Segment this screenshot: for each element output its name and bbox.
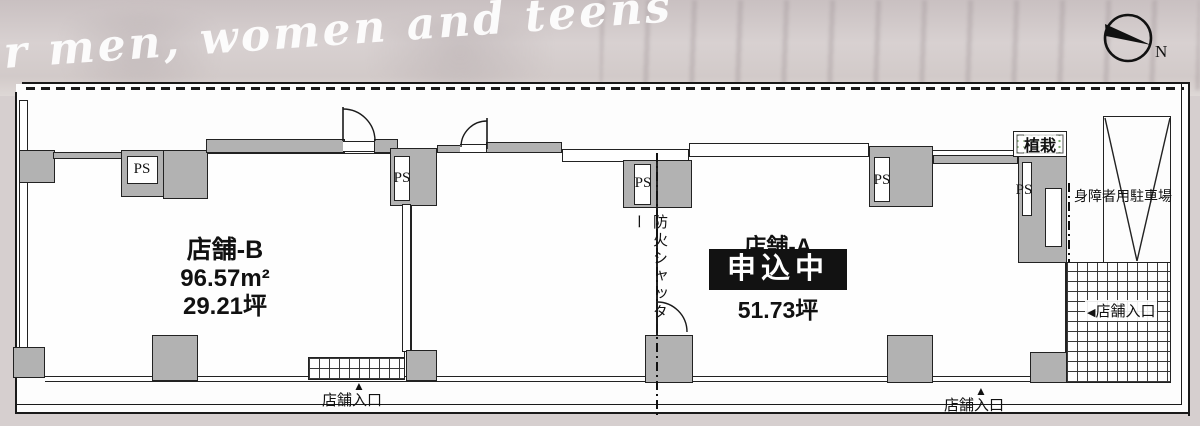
- entrance-tiles-east: [1066, 262, 1171, 383]
- entrance-tiles-unit-b: [308, 357, 405, 380]
- wall-pillar: [19, 150, 55, 183]
- wall-left-exterior: [19, 100, 28, 350]
- ps-label: PS: [627, 175, 659, 192]
- plan-edge-right: [1181, 84, 1182, 405]
- entrance-label: 店舗入口: [1095, 304, 1155, 320]
- entrance-label: 店舗入口: [322, 389, 402, 410]
- planting-box: 植栽: [1013, 131, 1067, 157]
- wall-pillar: [152, 335, 198, 381]
- unit-b-area-m2: 96.57m²: [115, 265, 335, 293]
- wall-block: [657, 160, 692, 208]
- compass-n-label: N: [1155, 42, 1167, 61]
- unit-b-area-tsubo: 29.21坪: [115, 293, 335, 321]
- wall-segment-top: [206, 139, 345, 153]
- unit-a-area-tsubo: 51.73坪: [709, 291, 847, 325]
- wall-segment: [933, 155, 1018, 164]
- ps-label: PS: [866, 172, 898, 189]
- wall-partition-b-a: [402, 204, 411, 352]
- wall-pillar: [887, 335, 933, 383]
- north-compass-icon: N: [1098, 8, 1184, 70]
- wall-pillar: [13, 347, 45, 378]
- wall-segment-top: [486, 142, 562, 153]
- property-dashed-line-top: [26, 87, 1184, 90]
- door-swing-icon: [655, 300, 689, 334]
- wall-pillar: [645, 335, 693, 383]
- property-line-right: [1188, 82, 1190, 416]
- entrance-label: 店舗入口: [944, 394, 1024, 415]
- wall-pillar: [1030, 352, 1067, 383]
- wall-block: [163, 150, 208, 199]
- unit-a-status-badge: 申込中: [709, 249, 847, 290]
- wall-segment: [53, 152, 123, 159]
- planting-label: 植栽: [1024, 132, 1056, 156]
- door-swing-icon: [341, 107, 377, 143]
- ps-label: PS: [1008, 182, 1040, 199]
- unit-b-name: 店舗-B: [115, 236, 335, 265]
- ps-label: PS: [386, 170, 418, 187]
- wall-pillar: [406, 350, 437, 381]
- wall-unit-a-top: [689, 143, 869, 157]
- room-unit-a-west: [411, 150, 657, 378]
- property-line-top: [22, 82, 1190, 84]
- door-swing-icon: [458, 118, 490, 150]
- ps-label: PS: [126, 161, 158, 178]
- disabled-parking-label: 身障者用駐車場: [1074, 186, 1186, 206]
- door-slot: [1045, 188, 1062, 247]
- unit-b-label-block: 店舗-B 96.57m² 29.21坪: [115, 236, 335, 321]
- entrance-side-label: ◀店舗入口: [1085, 300, 1157, 321]
